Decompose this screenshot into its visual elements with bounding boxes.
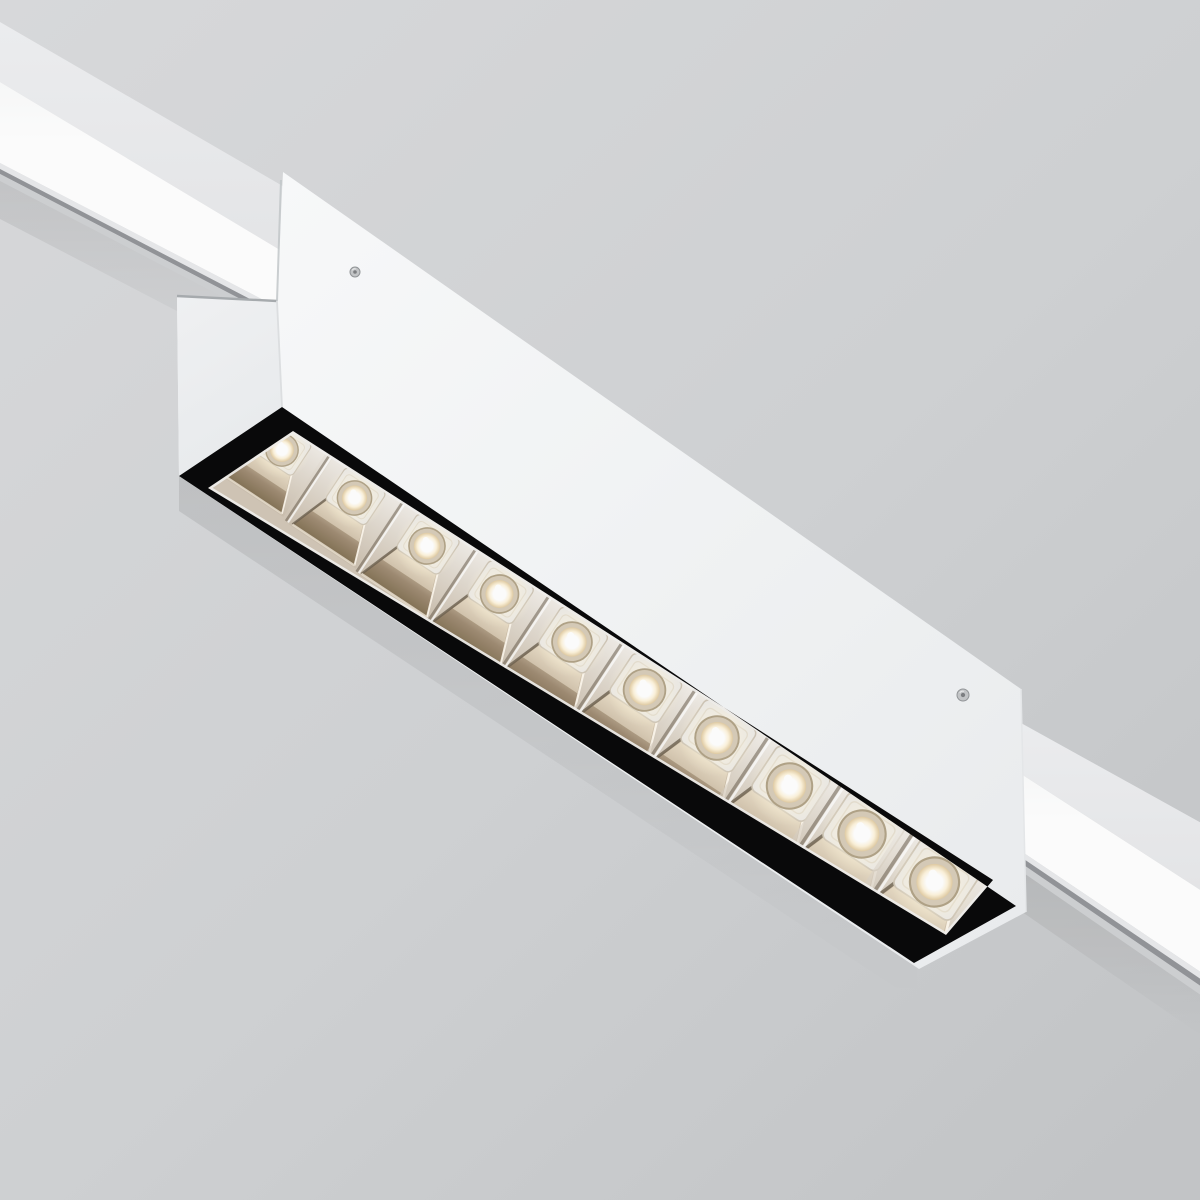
product-photo	[0, 0, 1200, 1200]
vignette-overlay	[0, 0, 1200, 1200]
scene-image	[0, 0, 1200, 1200]
